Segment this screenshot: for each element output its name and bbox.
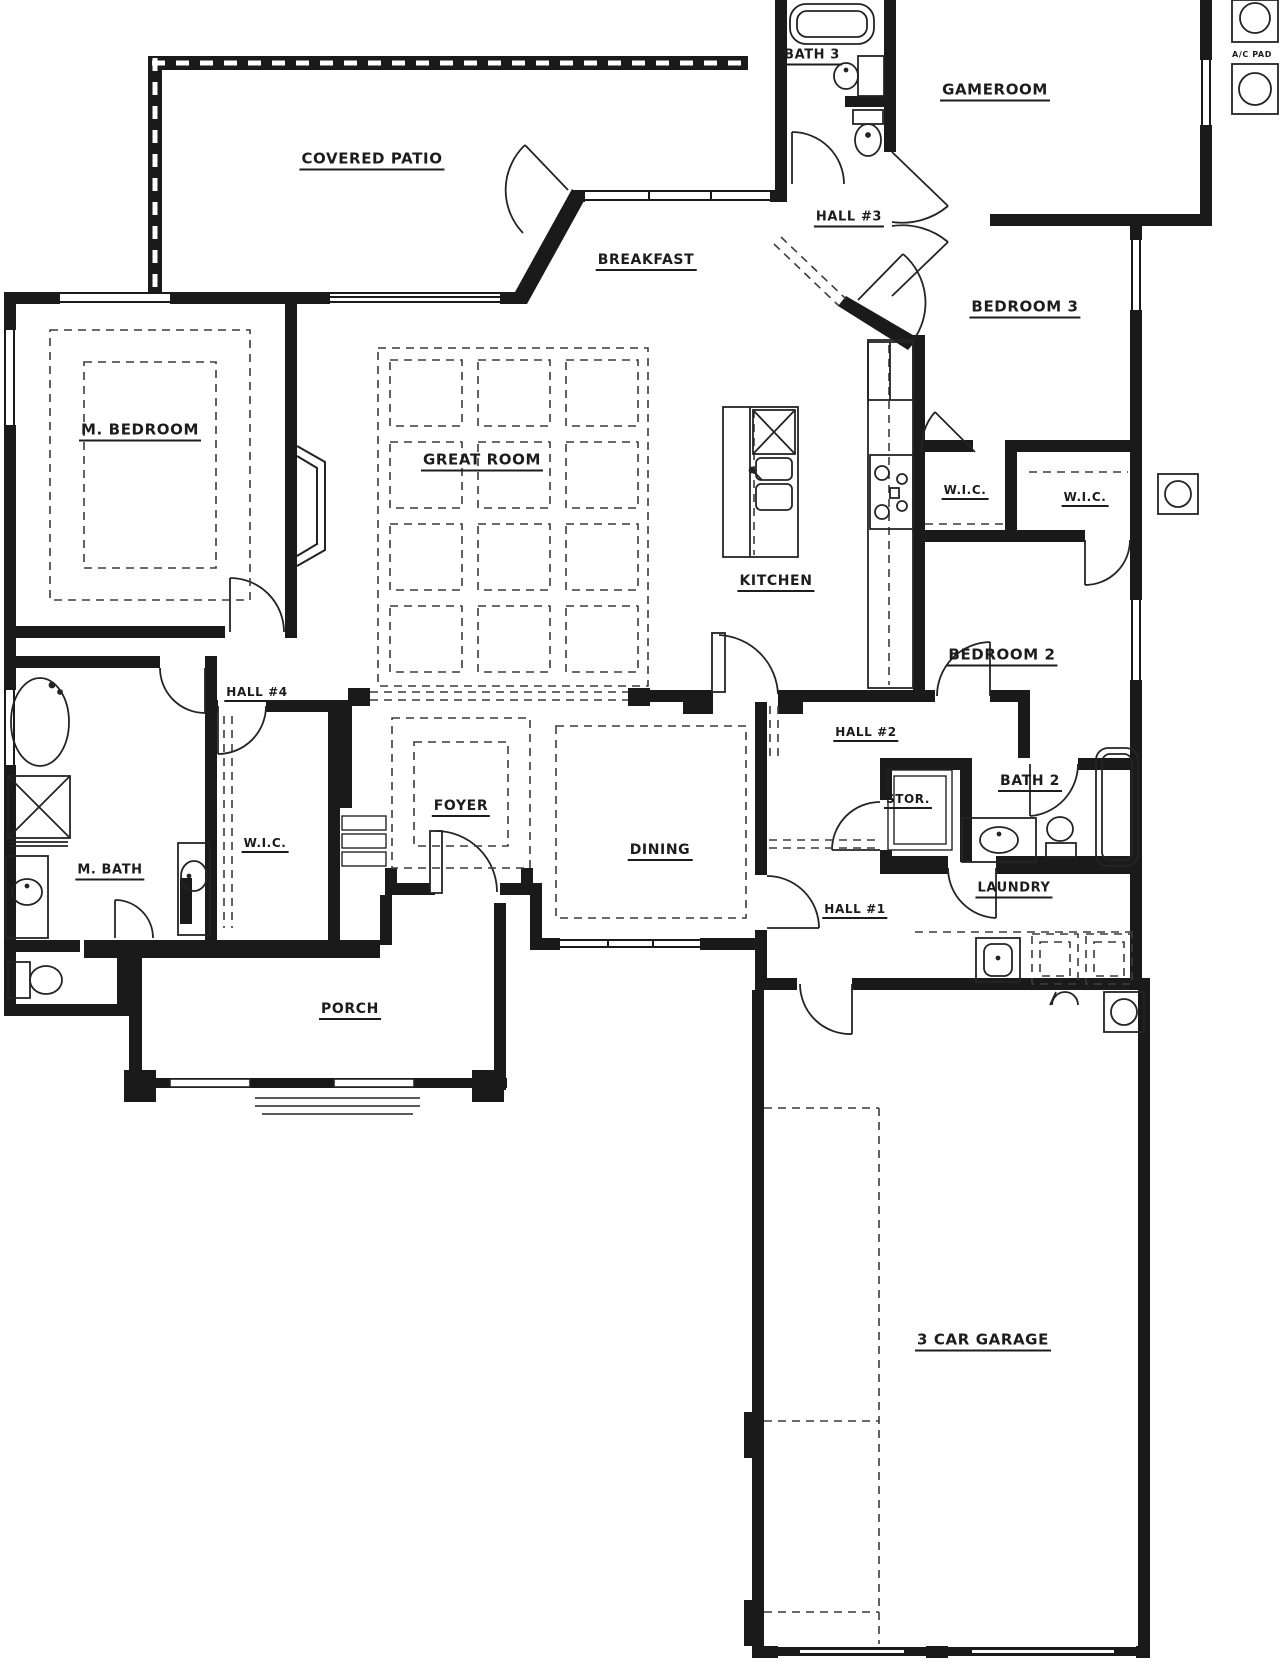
- room-label-porch: PORCH: [319, 1002, 381, 1020]
- door-hall1-icon: [767, 876, 819, 928]
- room-label-wic-bed2: W.I.C.: [1062, 491, 1109, 507]
- ac-pad-top-icon: [1232, 0, 1278, 42]
- door-kitchen-dining-icon: [712, 633, 778, 694]
- kitchen-island-icon: [723, 407, 798, 557]
- room-label-hall-3: HALL #3: [814, 211, 884, 228]
- door-wic-master-icon: [218, 706, 266, 754]
- door-bath3-icon: [792, 132, 844, 184]
- room-label-dining: DINING: [628, 843, 693, 861]
- ac-pad-side-icon: [1158, 474, 1198, 514]
- room-label-garage: 3 CAR GARAGE: [915, 1333, 1051, 1352]
- floor-plan-canvas: COVERED PATIOBATH 3GAMEROOMA/C PADHALL #…: [0, 0, 1280, 1665]
- room-label-hall-4: HALL #4: [224, 686, 289, 702]
- room-label-bedroom-2: BEDROOM 2: [946, 648, 1057, 667]
- room-label-breakfast: BREAKFAST: [596, 253, 697, 271]
- room-label-stor: STOR.: [884, 793, 932, 809]
- door-wic-bed2-icon: [1085, 540, 1130, 585]
- media-niche-icon: [297, 446, 325, 566]
- room-label-wic-bed3: W.I.C.: [942, 484, 989, 500]
- room-label-hall-2: HALL #2: [833, 726, 898, 742]
- walls: [4, 0, 1212, 1658]
- floor-drain-icon: [1050, 992, 1078, 1005]
- room-label-great-room: GREAT ROOM: [421, 453, 543, 472]
- room-label-gameroom: GAMEROOM: [940, 83, 1050, 102]
- bathtub3-icon: [790, 4, 874, 44]
- floor-plan-drawing: [0, 0, 1280, 1665]
- door-toilet-room-icon: [115, 900, 153, 938]
- storage-shelf-icon: [888, 770, 952, 850]
- range-icon: [870, 455, 913, 529]
- toilet-bath3-icon: [853, 110, 883, 156]
- room-label-bath-3: BATH 3: [782, 49, 842, 66]
- room-label-laundry: LAUNDRY: [975, 882, 1052, 899]
- garage-door-icons: [776, 1647, 1138, 1656]
- dryer-icon: [1086, 934, 1132, 984]
- room-label-bath-2: BATH 2: [998, 774, 1062, 792]
- room-label-bedroom-3: BEDROOM 3: [969, 300, 1080, 319]
- ac-pad-bottom-icon: [1232, 64, 1278, 114]
- mbath-shower-icon: [8, 776, 70, 846]
- fixtures: [6, 0, 1278, 1656]
- room-label-m-bedroom: M. BEDROOM: [79, 423, 201, 442]
- door-mbedroom-icon: [230, 578, 284, 632]
- room-label-covered-patio: COVERED PATIO: [299, 152, 444, 171]
- door-mbath-icon: [160, 668, 205, 713]
- room-label-m-bath: M. BATH: [75, 864, 144, 881]
- closet-shelves-icon: [342, 816, 386, 866]
- room-label-hall-1: HALL #1: [822, 903, 887, 919]
- mbath-toilet-icon: [8, 962, 62, 998]
- mbath-tub-icon: [11, 678, 69, 766]
- room-label-ac-pad: A/C PAD: [1230, 51, 1274, 59]
- washer-icon: [1032, 934, 1078, 984]
- door-storage-icon: [832, 802, 880, 850]
- bath2-vanity-icon: [962, 818, 1036, 862]
- room-label-wic-master: W.I.C.: [242, 837, 289, 853]
- bath2-toilet-icon: [1046, 817, 1076, 857]
- laundry-sink-icon: [976, 938, 1020, 982]
- room-label-kitchen: KITCHEN: [737, 574, 814, 592]
- room-label-foyer: FOYER: [432, 799, 490, 817]
- door-garage-entry-icon: [800, 984, 852, 1034]
- door-front-icon: [430, 831, 497, 893]
